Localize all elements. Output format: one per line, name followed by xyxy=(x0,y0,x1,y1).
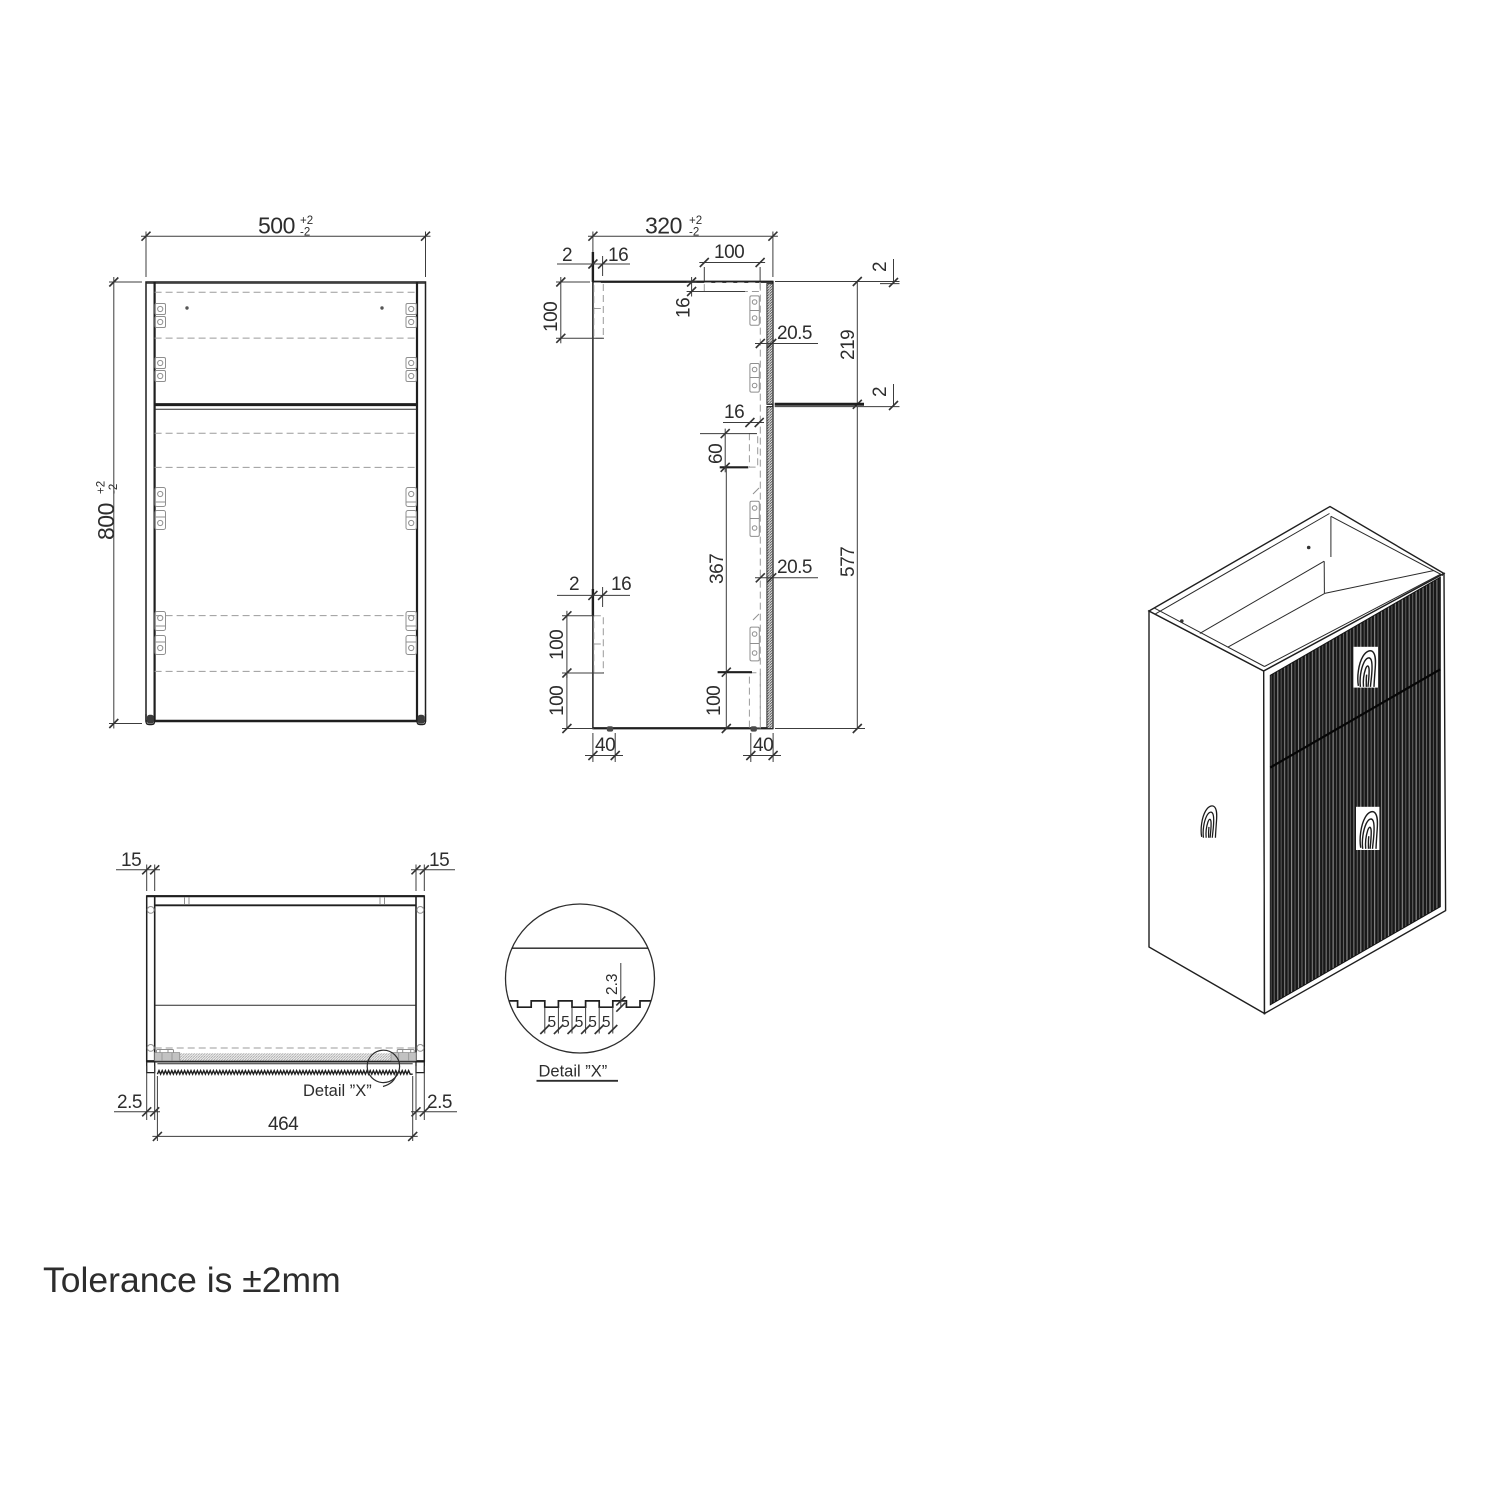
svg-text:577: 577 xyxy=(838,547,859,577)
svg-text:2: 2 xyxy=(569,574,579,595)
svg-text:15: 15 xyxy=(429,850,449,871)
svg-text:+2: +2 xyxy=(96,481,108,494)
svg-text:16: 16 xyxy=(611,574,631,595)
svg-text:Detail ”X”: Detail ”X” xyxy=(303,1082,372,1100)
svg-text:5: 5 xyxy=(602,1014,611,1031)
svg-text:15: 15 xyxy=(121,850,141,871)
svg-text:-2: -2 xyxy=(300,227,310,239)
svg-text:-2: -2 xyxy=(108,484,120,494)
svg-text:60: 60 xyxy=(706,444,727,464)
svg-text:16: 16 xyxy=(674,298,695,318)
svg-text:-2: -2 xyxy=(689,227,699,239)
svg-text:16: 16 xyxy=(724,402,744,423)
svg-text:800: 800 xyxy=(93,503,119,540)
svg-text:2: 2 xyxy=(870,387,891,397)
svg-text:40: 40 xyxy=(595,735,615,756)
svg-text:Tolerance is ±2mm: Tolerance is ±2mm xyxy=(43,1260,341,1300)
svg-text:100: 100 xyxy=(547,630,568,660)
svg-text:+2: +2 xyxy=(300,215,313,227)
svg-text:2.5: 2.5 xyxy=(427,1092,452,1113)
svg-text:5: 5 xyxy=(561,1014,570,1031)
svg-text:100: 100 xyxy=(547,686,568,716)
svg-text:500: 500 xyxy=(258,213,295,239)
svg-text:100: 100 xyxy=(714,242,744,263)
svg-text:20.5: 20.5 xyxy=(777,323,812,344)
svg-text:16: 16 xyxy=(608,245,628,266)
svg-text:219: 219 xyxy=(838,330,859,360)
svg-text:40: 40 xyxy=(753,735,773,756)
svg-text:2.5: 2.5 xyxy=(117,1092,142,1113)
svg-text:2.3: 2.3 xyxy=(604,973,621,995)
svg-text:464: 464 xyxy=(268,1114,299,1135)
svg-text:+2: +2 xyxy=(689,215,702,227)
svg-text:2: 2 xyxy=(562,245,572,266)
svg-text:320: 320 xyxy=(645,213,682,239)
svg-text:5: 5 xyxy=(575,1014,584,1031)
svg-text:100: 100 xyxy=(541,302,562,332)
svg-text:20.5: 20.5 xyxy=(777,557,812,578)
svg-text:Detail ”X”: Detail ”X” xyxy=(539,1063,608,1081)
svg-text:2: 2 xyxy=(870,262,891,272)
svg-text:5: 5 xyxy=(588,1014,597,1031)
svg-text:367: 367 xyxy=(707,554,728,584)
svg-text:5: 5 xyxy=(548,1014,557,1031)
svg-text:100: 100 xyxy=(704,686,725,716)
